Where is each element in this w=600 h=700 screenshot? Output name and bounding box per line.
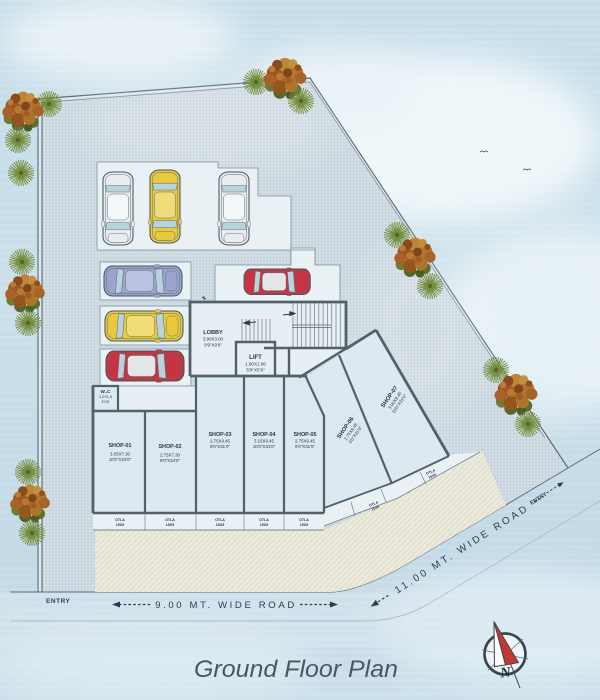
svg-text:9.00 MT. WIDE ROAD: 9.00 MT. WIDE ROAD: [155, 600, 297, 611]
svg-text:OTLA: OTLA: [115, 518, 125, 522]
svg-text:3.90X3.00: 3.90X3.00: [203, 337, 224, 342]
svg-text:3.05X7.30: 3.05X7.30: [110, 452, 131, 457]
svg-text:SHOP-02: SHOP-02: [158, 444, 181, 450]
svg-text:9'0"X24'0": 9'0"X24'0": [160, 458, 180, 463]
svg-text:10'0"X31'0": 10'0"X31'0": [253, 444, 276, 449]
svg-text:OTLA: OTLA: [215, 518, 225, 522]
svg-text:10'0"X24'0": 10'0"X24'0": [109, 457, 132, 462]
svg-text:Ground Floor Plan: Ground Floor Plan: [194, 656, 398, 683]
svg-text:OTLA: OTLA: [259, 518, 269, 522]
svg-text:SHOP-01: SHOP-01: [108, 443, 131, 449]
svg-text:LIFT: LIFT: [249, 355, 262, 361]
svg-text:LOBBY: LOBBY: [203, 330, 223, 336]
svg-text:SHOP-03: SHOP-03: [208, 432, 231, 438]
svg-text:15X5: 15X5: [300, 523, 308, 527]
svg-text:15X5: 15X5: [116, 523, 124, 527]
svg-text:3.15X9.45: 3.15X9.45: [254, 439, 275, 444]
svg-text:2.75X9.45: 2.75X9.45: [295, 439, 316, 444]
svg-text:OTLA: OTLA: [299, 518, 309, 522]
svg-text:SHOP-05: SHOP-05: [293, 432, 316, 438]
svg-text:15X5: 15X5: [260, 523, 268, 527]
svg-text:15X5: 15X5: [216, 523, 224, 527]
svg-text:2.75X9.45: 2.75X9.45: [210, 439, 231, 444]
svg-text:ENTRY: ENTRY: [46, 598, 71, 605]
svg-text:9'0"X31'0": 9'0"X31'0": [210, 444, 230, 449]
svg-text:1.2X1.5: 1.2X1.5: [99, 395, 112, 399]
svg-text:SHOP-04: SHOP-04: [252, 432, 275, 438]
svg-text:1.80X1.80: 1.80X1.80: [245, 362, 266, 367]
svg-text:4'X5': 4'X5': [101, 400, 109, 404]
svg-text:5'9"X5'9": 5'9"X5'9": [246, 368, 265, 373]
svg-text:9'9"X9'9": 9'9"X9'9": [204, 343, 222, 348]
svg-text:9'0"X31'0": 9'0"X31'0": [295, 444, 315, 449]
svg-text:15X5: 15X5: [166, 523, 174, 527]
svg-text:W..C: W..C: [101, 389, 112, 394]
svg-text:OTLA: OTLA: [165, 518, 175, 522]
svg-text:2.75X7.30: 2.75X7.30: [160, 453, 181, 458]
svg-text:N: N: [499, 664, 513, 681]
